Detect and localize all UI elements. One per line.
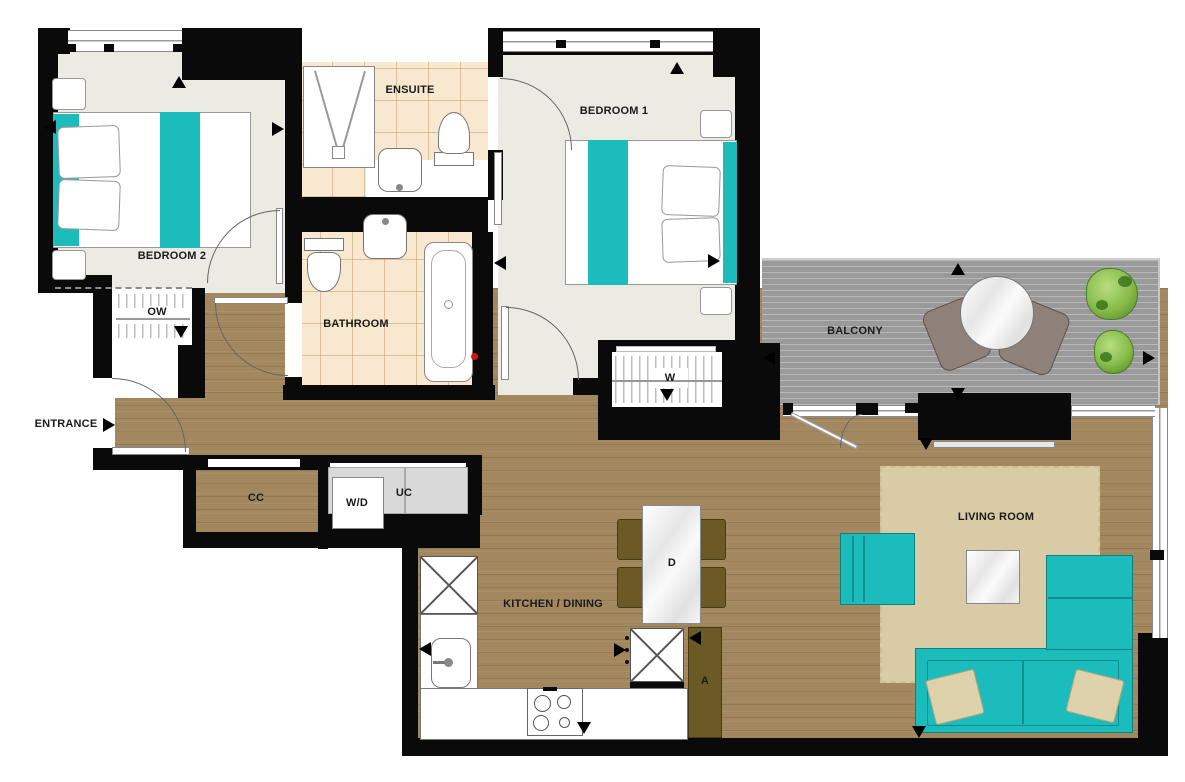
balcony-sliding-door bbox=[1072, 405, 1155, 417]
dining-chair-icon bbox=[617, 567, 644, 608]
window-mullion bbox=[650, 40, 660, 48]
window-mullion bbox=[556, 40, 566, 48]
d-label: D bbox=[668, 557, 676, 569]
marker-arrow-down bbox=[660, 389, 674, 401]
ensuite-door bbox=[494, 152, 502, 225]
window-mullion bbox=[68, 44, 76, 52]
balcony-sliding-door bbox=[783, 405, 918, 417]
faucet-arm bbox=[433, 661, 445, 664]
w-label: W bbox=[665, 372, 676, 384]
window-mullion bbox=[1150, 550, 1164, 560]
uc-label: UC bbox=[396, 487, 412, 499]
floor-plan: BEDROOM 1 BEDROOM 2 ENSUITE BATHROOM BAL… bbox=[0, 0, 1185, 782]
bathtub-inner bbox=[431, 250, 466, 368]
wall bbox=[402, 543, 418, 756]
red-marker bbox=[471, 353, 478, 360]
marker-arrow-down bbox=[577, 722, 591, 734]
armchair-line bbox=[863, 536, 865, 602]
marker-arrow-right bbox=[272, 122, 284, 136]
toilet-tank bbox=[434, 152, 474, 166]
marker-arrow-left bbox=[419, 642, 431, 656]
wall bbox=[183, 532, 332, 548]
pillow-icon bbox=[57, 125, 121, 179]
door-jamb bbox=[905, 403, 919, 413]
armchair-line bbox=[852, 536, 854, 602]
wall bbox=[178, 345, 205, 398]
burner-icon bbox=[534, 695, 551, 712]
faucet-icon bbox=[444, 658, 453, 667]
nightstand-icon bbox=[700, 287, 732, 315]
cc-threshold bbox=[208, 459, 300, 467]
bathtub-drain bbox=[444, 300, 453, 309]
wall bbox=[735, 55, 760, 353]
marker-arrow-down bbox=[951, 388, 965, 400]
bed-runner bbox=[588, 140, 628, 285]
exterior bbox=[20, 280, 103, 480]
window-mullion bbox=[173, 44, 182, 52]
wd-label: W/D bbox=[346, 497, 368, 509]
ow-rail bbox=[116, 318, 190, 320]
marker-arrow-right bbox=[614, 643, 626, 657]
bedroom2-window bbox=[68, 30, 182, 52]
toilet-icon bbox=[438, 112, 470, 154]
burner-icon bbox=[533, 715, 549, 731]
marker-arrow-up bbox=[172, 76, 186, 88]
dining-chair-icon bbox=[699, 519, 726, 560]
marker-arrow-left bbox=[494, 256, 506, 270]
dining-chair-icon bbox=[699, 567, 726, 608]
wall bbox=[468, 455, 482, 515]
faucet-icon bbox=[382, 218, 389, 225]
wall bbox=[38, 28, 70, 54]
plant-leaf bbox=[1096, 300, 1108, 310]
plant-leaf bbox=[1118, 276, 1132, 287]
bed-headboard bbox=[723, 142, 737, 283]
marker-arrow-down bbox=[174, 326, 188, 338]
cc-label: CC bbox=[248, 492, 264, 504]
marker-arrow-up bbox=[951, 263, 965, 275]
kitchen-dining-label: KITCHEN / DINING bbox=[503, 598, 603, 610]
wall bbox=[598, 352, 612, 412]
toilet-tank bbox=[304, 238, 344, 251]
marker-arrow-down bbox=[919, 438, 933, 450]
coffee-table-icon bbox=[966, 550, 1020, 604]
faucet-icon bbox=[396, 184, 403, 191]
hob-vent bbox=[543, 687, 557, 691]
pillow-icon bbox=[57, 179, 121, 231]
plant-icon bbox=[1094, 330, 1134, 374]
nightstand-icon bbox=[700, 110, 732, 138]
marker-arrow-left bbox=[763, 351, 775, 365]
bedroom1-label: BEDROOM 1 bbox=[580, 105, 648, 117]
sofa-chaise bbox=[1046, 555, 1133, 650]
sofa-divider bbox=[1022, 660, 1024, 724]
burner-icon bbox=[559, 717, 570, 728]
living-room-label: LIVING ROOM bbox=[958, 511, 1034, 523]
nightstand-icon bbox=[52, 250, 86, 280]
burner-icon bbox=[557, 695, 571, 709]
window-mullion bbox=[104, 44, 114, 52]
ow-dashed-front bbox=[55, 287, 192, 289]
marker-arrow-up bbox=[670, 62, 684, 74]
wall bbox=[283, 385, 495, 400]
dining-chair-icon bbox=[617, 519, 644, 560]
tv-icon bbox=[933, 441, 1055, 448]
shower-drain bbox=[332, 146, 345, 159]
entrance-arrow bbox=[103, 418, 115, 432]
bathroom-label: BATHROOM bbox=[323, 318, 389, 330]
a-label: A bbox=[701, 675, 709, 687]
pillow-icon bbox=[661, 165, 721, 217]
ow-label: OW bbox=[145, 306, 168, 318]
marker-arrow-right bbox=[708, 254, 720, 268]
living-room-window bbox=[1152, 408, 1168, 638]
wall bbox=[192, 288, 205, 345]
oven-knobs bbox=[625, 660, 629, 664]
tall-unit-icon bbox=[630, 628, 684, 682]
chaise-line bbox=[1048, 597, 1132, 599]
bedroom1-window bbox=[503, 31, 713, 52]
marker-arrow-down bbox=[912, 726, 926, 738]
balcony-table-icon bbox=[960, 276, 1034, 350]
marker-arrow-left bbox=[689, 631, 701, 645]
wall bbox=[182, 28, 302, 80]
wall bbox=[93, 285, 112, 380]
ensuite-label: ENSUITE bbox=[385, 84, 434, 96]
w-threshold bbox=[616, 346, 716, 352]
bed-runner bbox=[160, 112, 200, 248]
tall-unit-icon bbox=[420, 556, 478, 614]
bedroom2-label: BEDROOM 2 bbox=[138, 250, 206, 262]
balcony-label: BALCONY bbox=[827, 325, 883, 337]
entrance-label: ENTRANCE bbox=[35, 418, 98, 430]
wall bbox=[285, 28, 302, 305]
wall bbox=[472, 232, 493, 388]
marker-arrow-left bbox=[44, 120, 56, 134]
tv-wall bbox=[918, 393, 1071, 440]
nightstand-icon bbox=[52, 78, 86, 110]
plant-icon bbox=[1086, 268, 1138, 320]
oven-knobs bbox=[625, 636, 629, 640]
plant-leaf bbox=[1100, 352, 1112, 362]
marker-arrow-right bbox=[1143, 351, 1155, 365]
wall bbox=[402, 738, 1168, 756]
wall bbox=[1138, 633, 1168, 743]
